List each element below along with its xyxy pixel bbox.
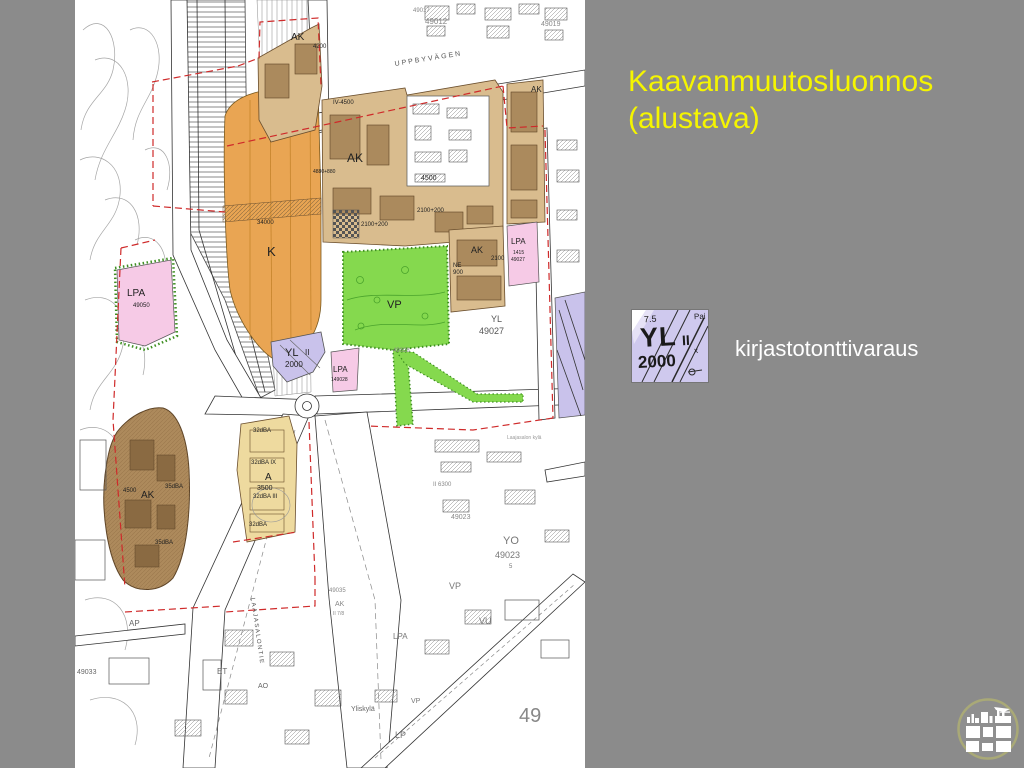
map-label: AP [129, 619, 140, 628]
zone-yl-east [555, 292, 585, 418]
map-label: 32dBA [253, 428, 271, 434]
legend-floor-count: II [682, 332, 691, 348]
map-label: 1415 [513, 250, 524, 256]
map-label: 49023 [495, 550, 520, 560]
zone-ak-east-column [507, 80, 545, 224]
map-label: AK [141, 490, 155, 501]
slide-title: Kaavanmuutosluonnos (alustava) [628, 64, 1008, 137]
map-label: AK [531, 85, 542, 94]
map-label: YL [285, 347, 298, 359]
map-label: 49019 [541, 21, 561, 28]
title-line-1: Kaavanmuutosluonnos [628, 64, 1008, 101]
map-label: AO [258, 683, 269, 690]
map-label: VP [387, 299, 402, 311]
map-label: 32dBA [249, 522, 267, 528]
map-label: 34000 [257, 220, 274, 226]
map-label: ET [217, 667, 227, 676]
zone-ak-2100 [449, 226, 505, 312]
map-label: LPA [127, 288, 145, 299]
map-label: NE [453, 263, 461, 269]
map-label: 35dBA [165, 484, 183, 490]
map-label: YL [491, 314, 502, 324]
map-label: 4200 [313, 44, 327, 50]
map-label: A [265, 472, 272, 483]
map-label: VP [411, 698, 421, 705]
map-label: 49027 [511, 257, 525, 263]
map-label: 3500 [257, 485, 273, 492]
zoning-map-image: 49017 AK 4200 49012 49019 UPPBYVÄGEN IV-… [75, 0, 585, 768]
map-label: LPA [511, 237, 526, 246]
map-label: 32dBA III [253, 494, 278, 500]
map-label: 2100+200 [361, 222, 389, 228]
city-buildings-icon [956, 696, 1020, 762]
map-label: 4500 [421, 175, 437, 182]
legend-cross-mark: x [694, 346, 698, 355]
map-label: AK [471, 245, 483, 255]
city-logo [956, 696, 1020, 762]
map-label: Yliskylä [351, 706, 375, 713]
zoning-map-svg: 49017 AK 4200 49012 49019 UPPBYVÄGEN IV-… [75, 0, 585, 768]
map-label: 35dBA [155, 540, 173, 546]
map-label: 4880+880 [313, 169, 336, 175]
map-label: 149028 [331, 377, 348, 383]
map-label: AK [291, 32, 305, 43]
map-label: 32dBA IX [251, 460, 276, 466]
map-label: 49033 [77, 669, 97, 676]
legend-building-right: 2000 [638, 351, 677, 373]
legend-corner-text: Pai [694, 312, 706, 322]
map-label: YO [503, 535, 519, 547]
legend-map-tile: 7.5 YL II x 2000 Pai [632, 310, 708, 382]
map-label: 2100+200 [417, 208, 445, 214]
presentation-slide: 49017 AK 4200 49012 49019 UPPBYVÄGEN IV-… [0, 0, 1024, 768]
map-label: 49050 [133, 303, 150, 309]
map-label: 49012 [425, 17, 448, 26]
map-label: IV-4500 [333, 100, 354, 106]
map-label: LPA [333, 365, 348, 374]
map-label: AK [347, 151, 363, 165]
map-label: 49028 [393, 348, 410, 354]
map-label: 49023 [451, 514, 471, 521]
legend-label: kirjastotonttivaraus [735, 336, 918, 362]
map-label: II 7/8 [333, 611, 344, 617]
map-label: 2000 [285, 360, 303, 369]
map-label: 4500 [123, 488, 137, 494]
map-label: LP [395, 730, 406, 740]
legend: 7.5 YL II x 2000 Pai kirjastotonttivarau… [632, 310, 972, 384]
map-label: 49017 [413, 8, 430, 14]
legend-zone-code: YL [639, 321, 677, 354]
map-label: AK [335, 601, 345, 608]
map-label: 49027 [479, 326, 504, 336]
map-label: II 6300 [433, 482, 452, 488]
map-label: VU [479, 616, 492, 626]
map-label: 49 [519, 705, 541, 727]
map-label: LPA [393, 632, 408, 641]
map-label: Laajasalon kylä [507, 435, 542, 441]
map-label: 2100 [491, 256, 505, 262]
map-label: 49035 [329, 588, 346, 594]
map-label: II [305, 348, 309, 357]
title-line-2: (alustava) [628, 101, 1008, 138]
map-label: K [267, 244, 276, 259]
map-label: 900 [453, 270, 464, 276]
map-label: VP [449, 581, 461, 591]
